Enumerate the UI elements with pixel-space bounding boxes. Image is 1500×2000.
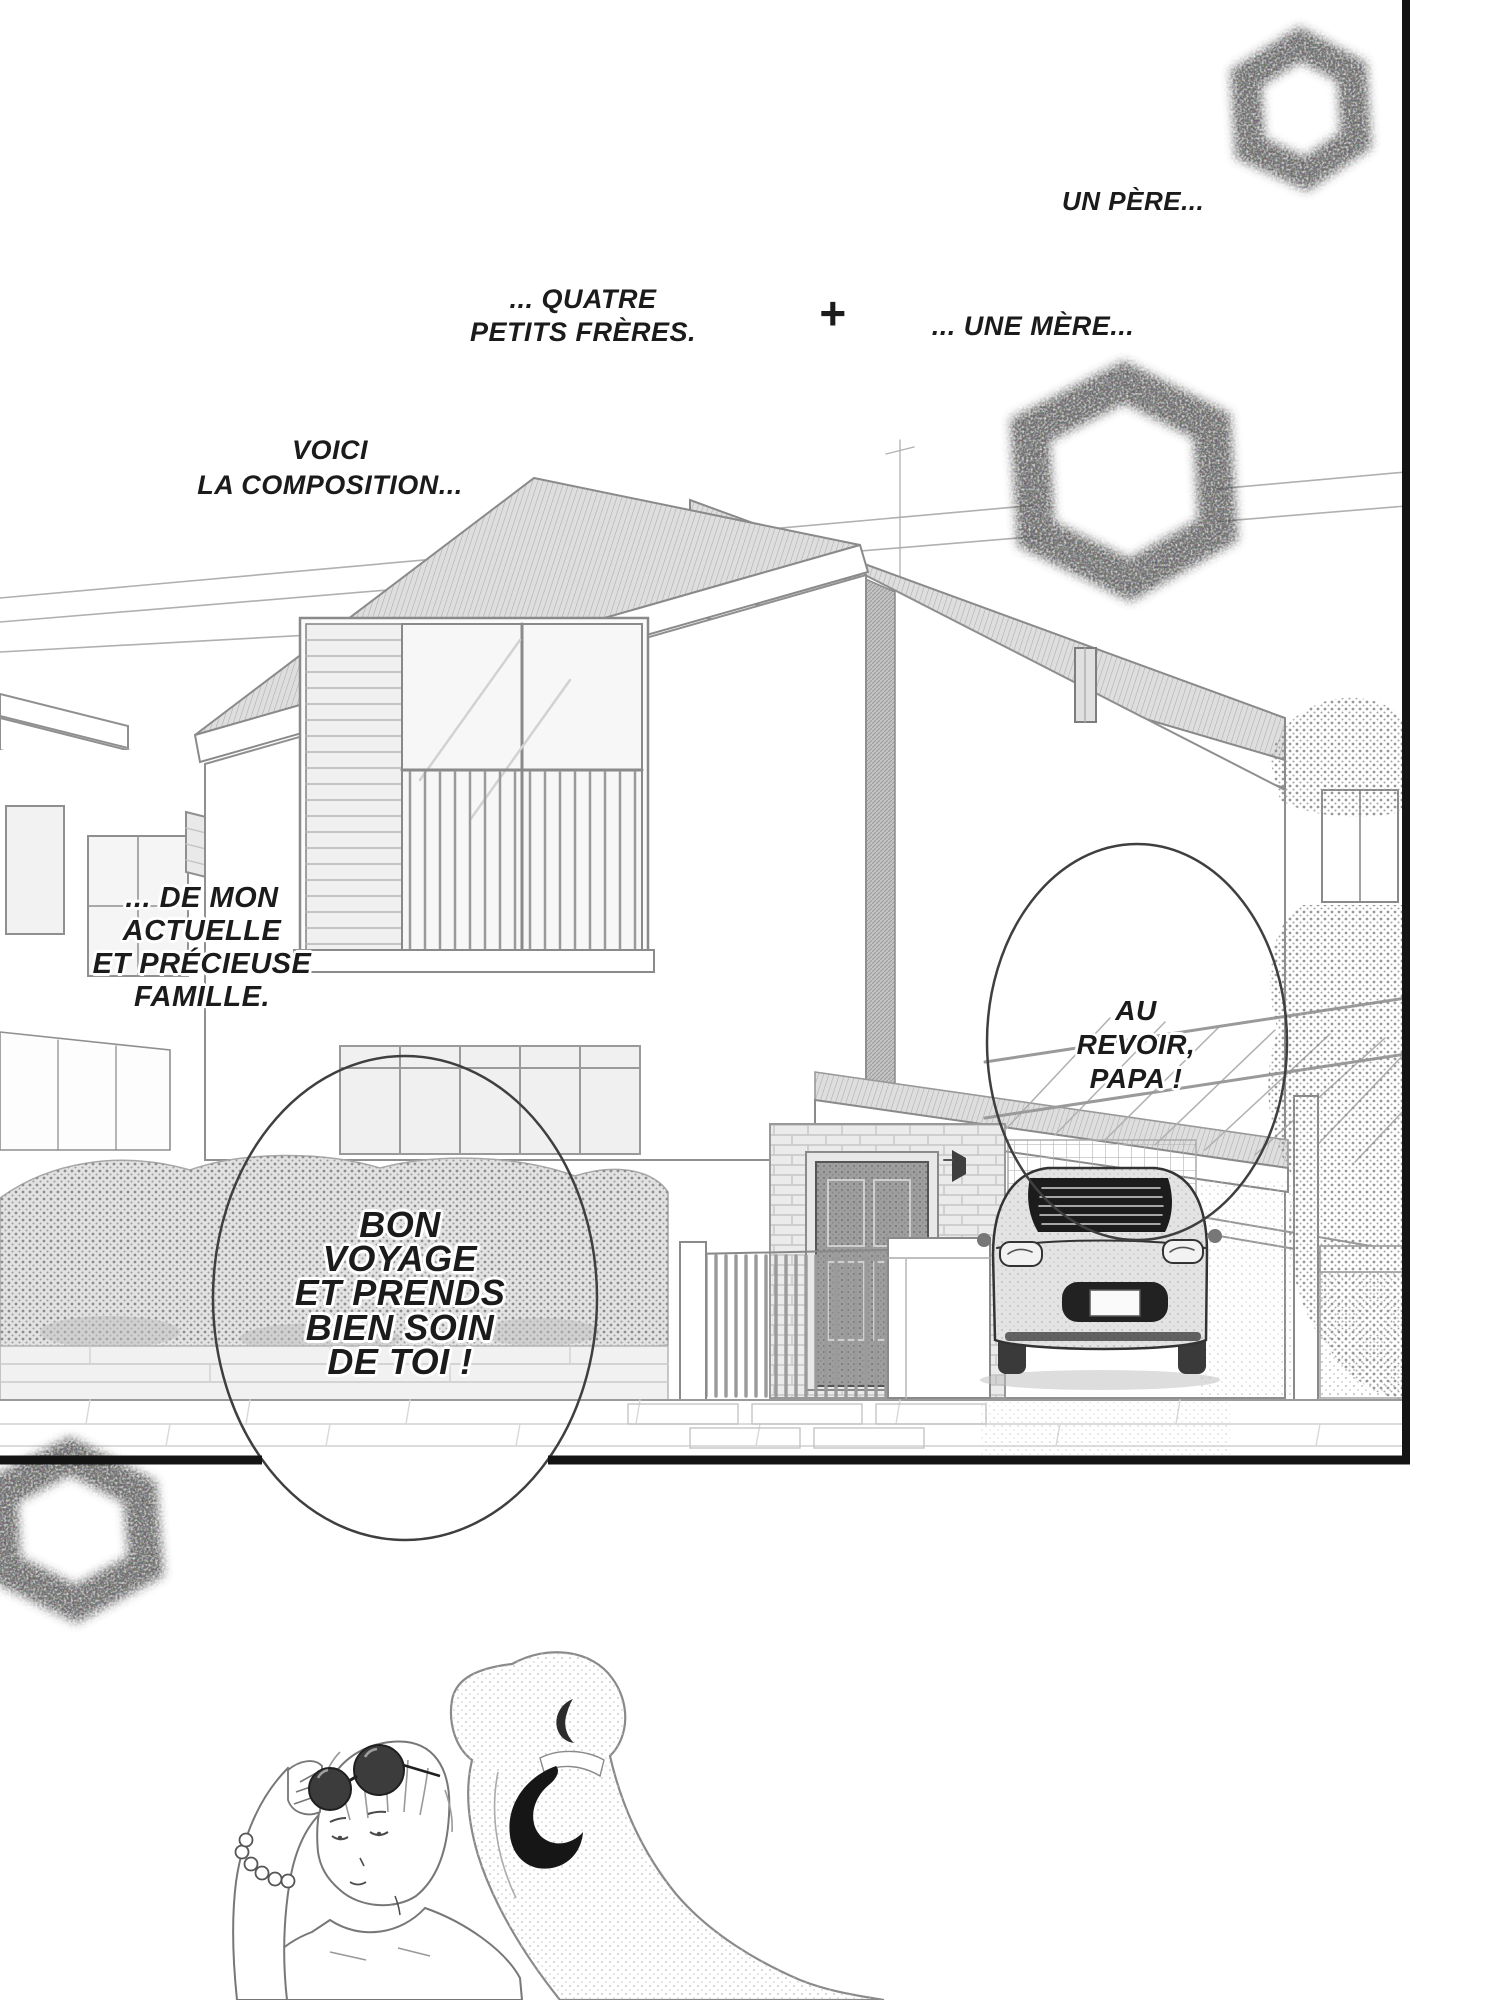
ground-window	[340, 1046, 640, 1154]
narration-de-mon: ... DE MON ACTUELLE ET PRÉCIEUSE FAMILLE…	[93, 882, 312, 1014]
speech-au-revoir: AU REVOIR, PAPA !	[1077, 994, 1196, 1096]
narration-un-pere: UN PÈRE...	[1062, 186, 1204, 217]
narration-plus-sign: +	[819, 290, 846, 336]
sidewalk	[0, 1400, 1406, 1458]
speech-bon-voyage: BON VOYAGE ET PRENDS BIEN SOIN DE TOI !	[295, 1208, 506, 1379]
narration-une-mere: ... UNE MÈRE...	[932, 310, 1135, 343]
screentone-blob-mid-right	[1030, 382, 1218, 580]
narration-quatre-freres: ... QUATRE PETITS FRÈRES.	[470, 283, 696, 349]
license-plate	[1090, 1290, 1140, 1316]
manga-page: UN PÈRE... ... QUATRE PETITS FRÈRES. + .…	[0, 0, 1500, 2000]
screentone-blob-bottom-left	[0, 1456, 146, 1604]
screentone-blob-top-right	[1246, 44, 1356, 174]
balcony-window	[294, 618, 654, 972]
flamingo-float	[451, 1652, 884, 2000]
narration-voici: VOICI LA COMPOSITION...	[197, 433, 463, 503]
gate	[680, 1238, 990, 1400]
